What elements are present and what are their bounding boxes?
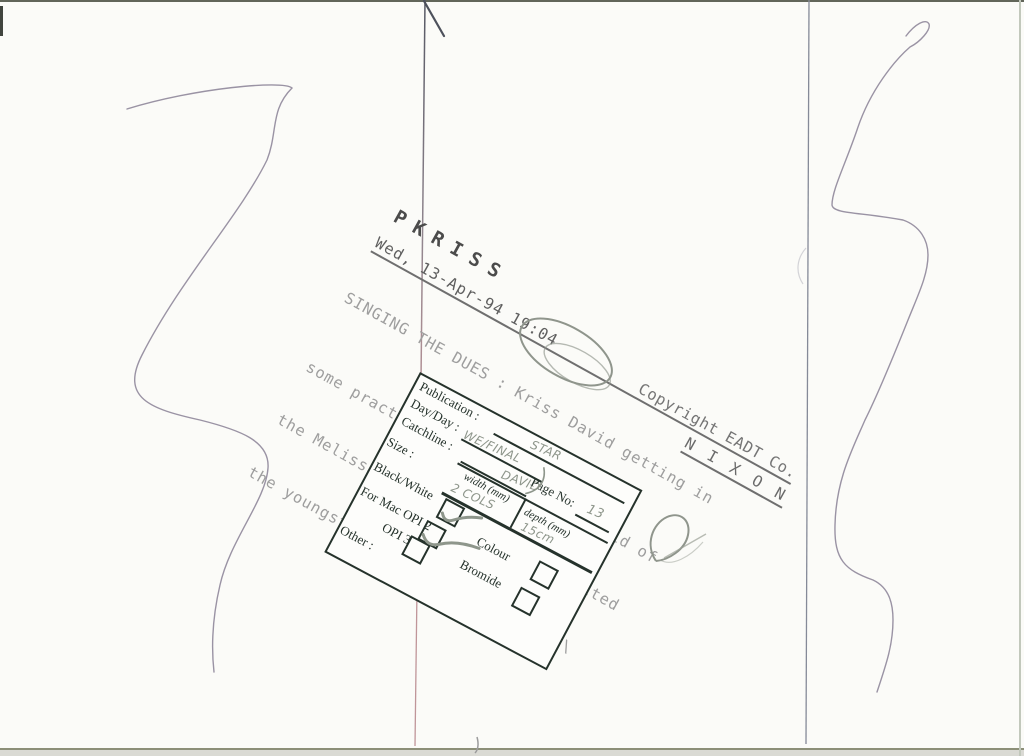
right-pen-squiggle [832,22,929,692]
for-mac-opi2-tick [421,522,479,565]
left-pen-squiggle [127,85,292,672]
fold-line-right [806,0,809,744]
crease-mark [798,248,806,284]
pen-hook-top [424,1,444,36]
black-white-tick [440,501,481,535]
scanned-photo-verso: PKRISS Wed, 13-Apr-94 19:04 Copyright EA… [0,0,1024,756]
bottom-tick-mark [475,737,478,753]
pencil-bracket [525,465,548,498]
